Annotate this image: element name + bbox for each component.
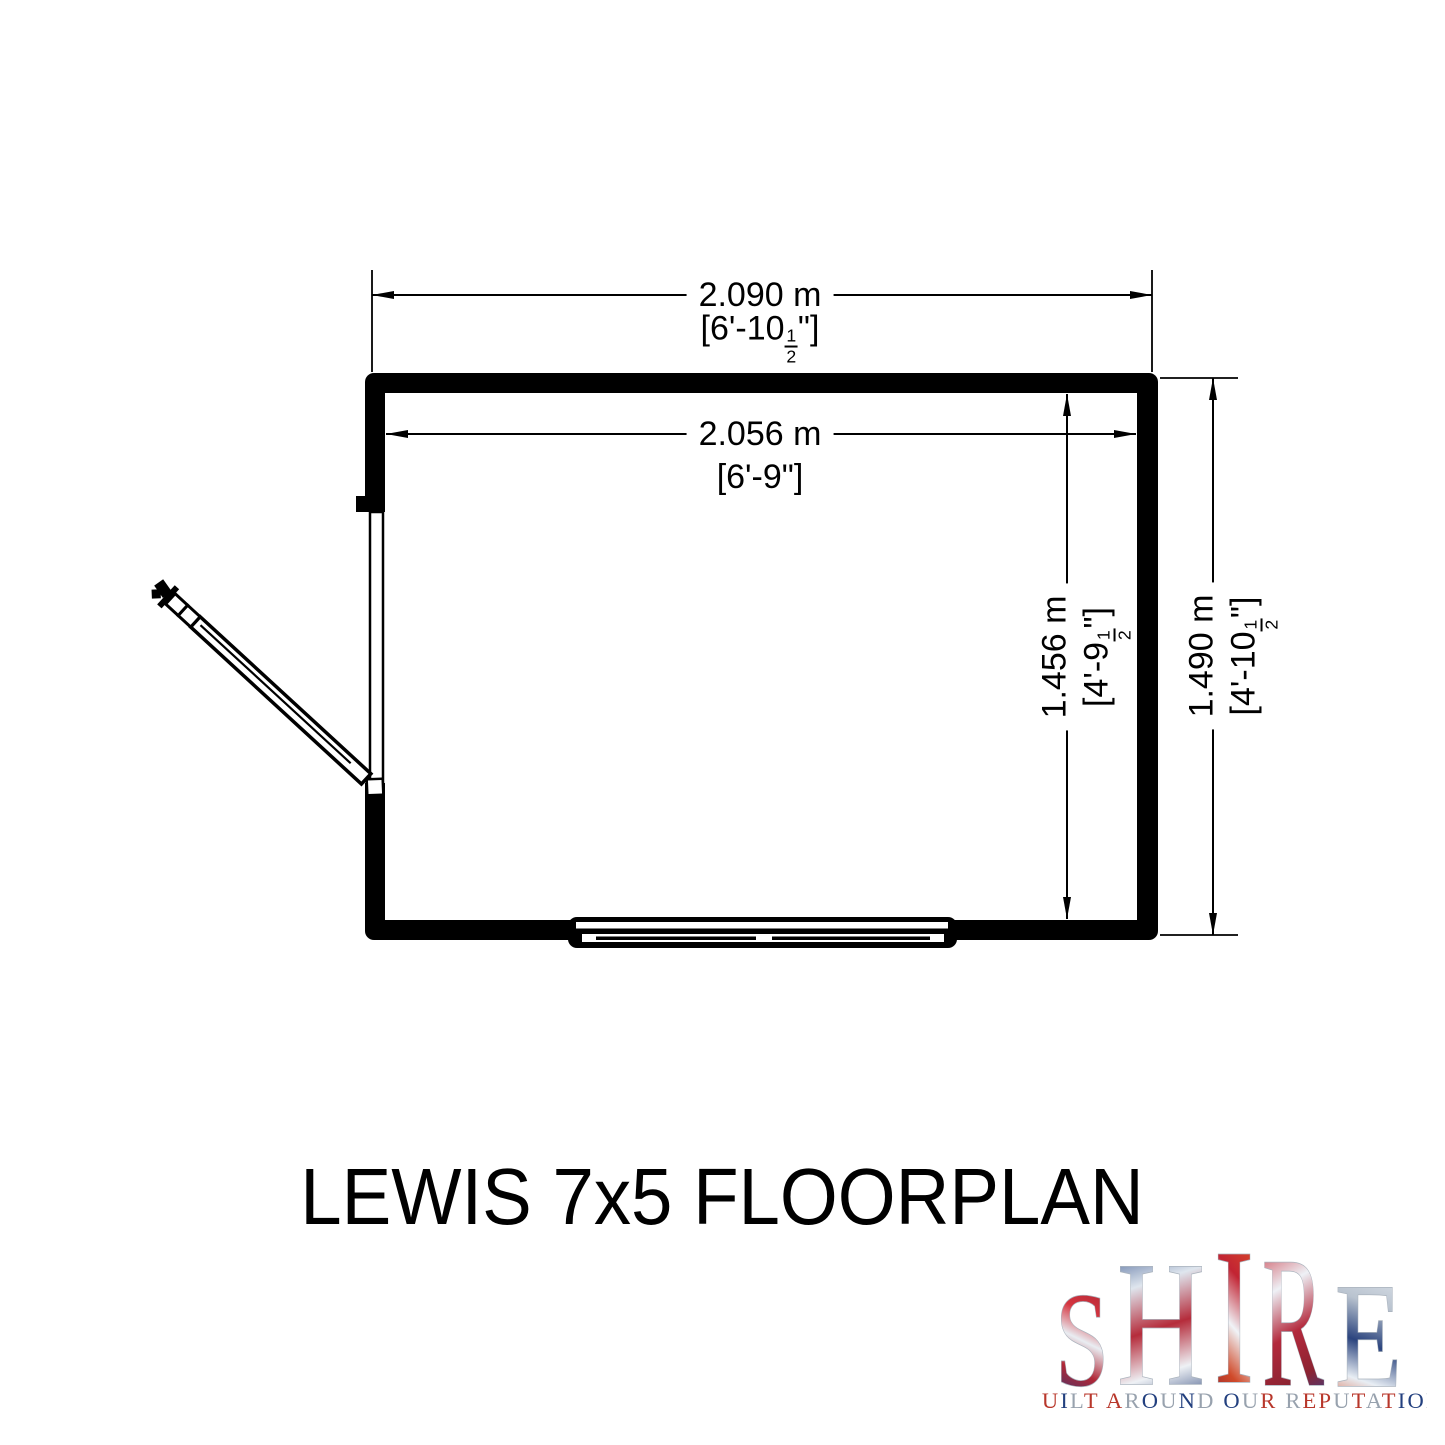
- brand-logo: S H I R E BUILT AROUND OUR REPUTATION: [1042, 1238, 1427, 1423]
- dim-side-outer-imperial: [4'-1012"]: [1223, 583, 1282, 730]
- door-pivot-icon: [367, 779, 384, 796]
- fraction: 12: [785, 327, 798, 366]
- floorplan-title: LEWIS 7x5 FLOORPLAN: [300, 1151, 1143, 1243]
- dim-top-inner-metric: 2.056 m: [687, 417, 834, 451]
- fraction: 12: [1242, 618, 1281, 631]
- door-leaf: [146, 575, 392, 804]
- dim-top-outer-imperial: [6'-1012"]: [701, 312, 820, 367]
- door-hinge-tab: [356, 496, 367, 512]
- window-sill-dash: [596, 937, 756, 941]
- arrowhead-icon: [1130, 291, 1152, 299]
- dim-top-outer-metric: 2.090 m: [687, 278, 834, 312]
- door-hardware-icon: [152, 589, 161, 598]
- arrowhead-icon: [1209, 913, 1217, 935]
- window-frame: [568, 917, 957, 948]
- arrowhead-icon: [372, 291, 394, 299]
- dim-top-inner-imperial: [6'-9"]: [717, 460, 804, 494]
- fraction: 12: [1095, 629, 1134, 642]
- window-sill-dash: [772, 937, 930, 941]
- dim-side-inner-label: 1.456 m [4'-912"]: [1034, 584, 1135, 731]
- arrowhead-icon: [1209, 378, 1217, 400]
- window: [568, 917, 957, 948]
- window-glazing-line: [576, 922, 948, 929]
- dim-side-outer-metric: 1.490 m: [1183, 583, 1221, 730]
- door: [146, 496, 392, 804]
- brand-tagline: BUILT AROUND OUR REPUTATION: [1042, 1388, 1427, 1413]
- door-jamb: [370, 512, 383, 783]
- dim-side-inner-metric: 1.456 m: [1036, 584, 1074, 731]
- page-root: { "page": {"background": "#ffffff"}, "fl…: [0, 0, 1445, 1445]
- dim-side-outer-label: 1.490 m [4'-1012"]: [1181, 583, 1282, 730]
- dim-side-inner-imperial: [4'-912"]: [1076, 584, 1135, 731]
- door-leaf-centerline: [200, 625, 350, 763]
